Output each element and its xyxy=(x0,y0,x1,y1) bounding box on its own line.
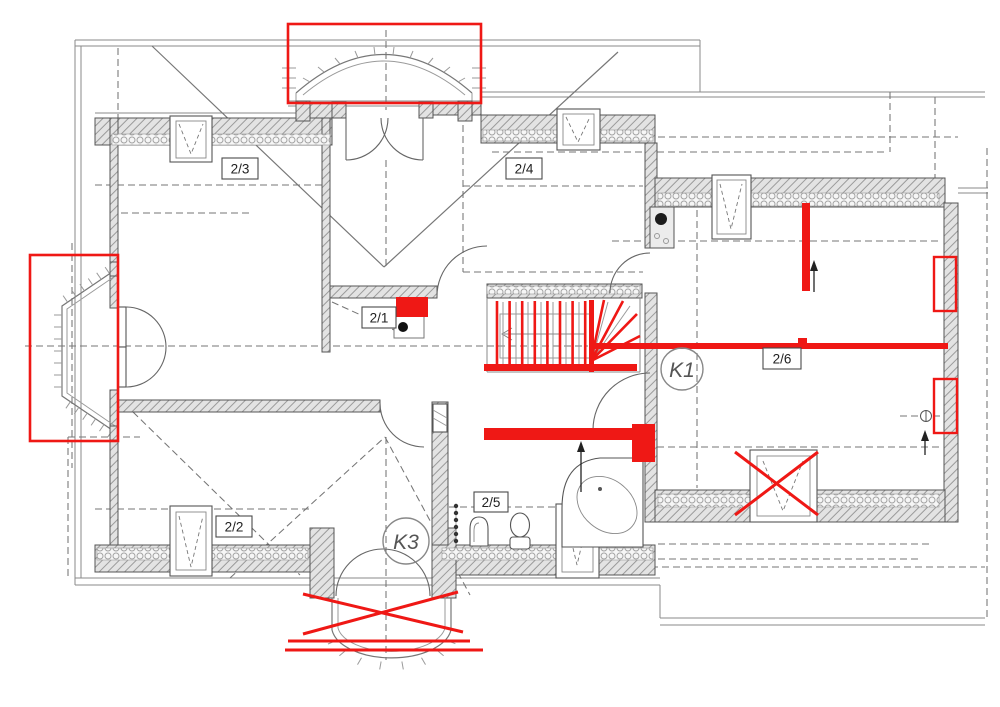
room-label-2-3: 2/3 xyxy=(222,158,258,179)
red-box-balcony-top xyxy=(288,24,481,103)
room-label-2-4: 2/4 xyxy=(506,158,542,179)
floor-plan: 2/3 2/4 2/1 2/2 2/5 2/6 K1 K3 xyxy=(0,0,1000,707)
window-top-center xyxy=(557,109,600,150)
room-label-2-2-text: 2/2 xyxy=(225,520,244,535)
chimney-flue-dot xyxy=(655,213,667,225)
marker-k1-text: K1 xyxy=(669,359,695,382)
marker-k3-text: K3 xyxy=(393,531,419,554)
room-label-2-1-text: 2/1 xyxy=(370,311,389,326)
red-wall-block xyxy=(632,424,655,462)
radiator xyxy=(433,404,447,432)
window-right-wing-top xyxy=(712,175,751,239)
room-label-2-5-text: 2/5 xyxy=(482,495,501,510)
double-door-top xyxy=(346,118,423,160)
red-lines-porch xyxy=(285,641,483,650)
arrow-up-right-wing xyxy=(810,260,818,292)
door-corridor xyxy=(593,373,650,430)
room-label-2-2: 2/2 xyxy=(216,516,252,537)
corner-bathtub xyxy=(562,458,648,547)
room-label-2-3-text: 2/3 xyxy=(231,162,250,177)
red-x-porch xyxy=(303,592,463,634)
room-label-2-1: 2/1 xyxy=(362,307,396,328)
toilet xyxy=(510,513,530,549)
stove-box xyxy=(394,316,424,338)
window-top-left xyxy=(170,116,212,162)
red-wall-bar-corridor xyxy=(484,428,636,440)
red-vertical-bar xyxy=(802,203,810,291)
floor-plan-drawing: 2/3 2/4 2/1 2/2 2/5 2/6 K1 K3 xyxy=(0,0,1000,707)
room-label-2-6: 2/6 xyxy=(763,348,801,369)
marker-k3: K3 xyxy=(383,518,429,564)
window-bottom-left xyxy=(170,506,212,576)
double-door-porch xyxy=(336,549,430,596)
arrow-up-bottom-right xyxy=(921,430,929,455)
bathroom-fixtures xyxy=(433,404,648,549)
double-door-left xyxy=(118,307,166,387)
room-label-2-4-text: 2/4 xyxy=(515,162,534,177)
bay-window-left xyxy=(54,262,118,440)
room-label-2-5: 2/5 xyxy=(474,492,508,512)
red-stair-treads xyxy=(484,300,640,372)
red-filled-square-2-1 xyxy=(396,297,428,317)
room-label-2-6-text: 2/6 xyxy=(773,352,792,367)
bidet xyxy=(470,517,488,546)
level-marker xyxy=(921,410,932,422)
door-hall xyxy=(437,246,487,296)
